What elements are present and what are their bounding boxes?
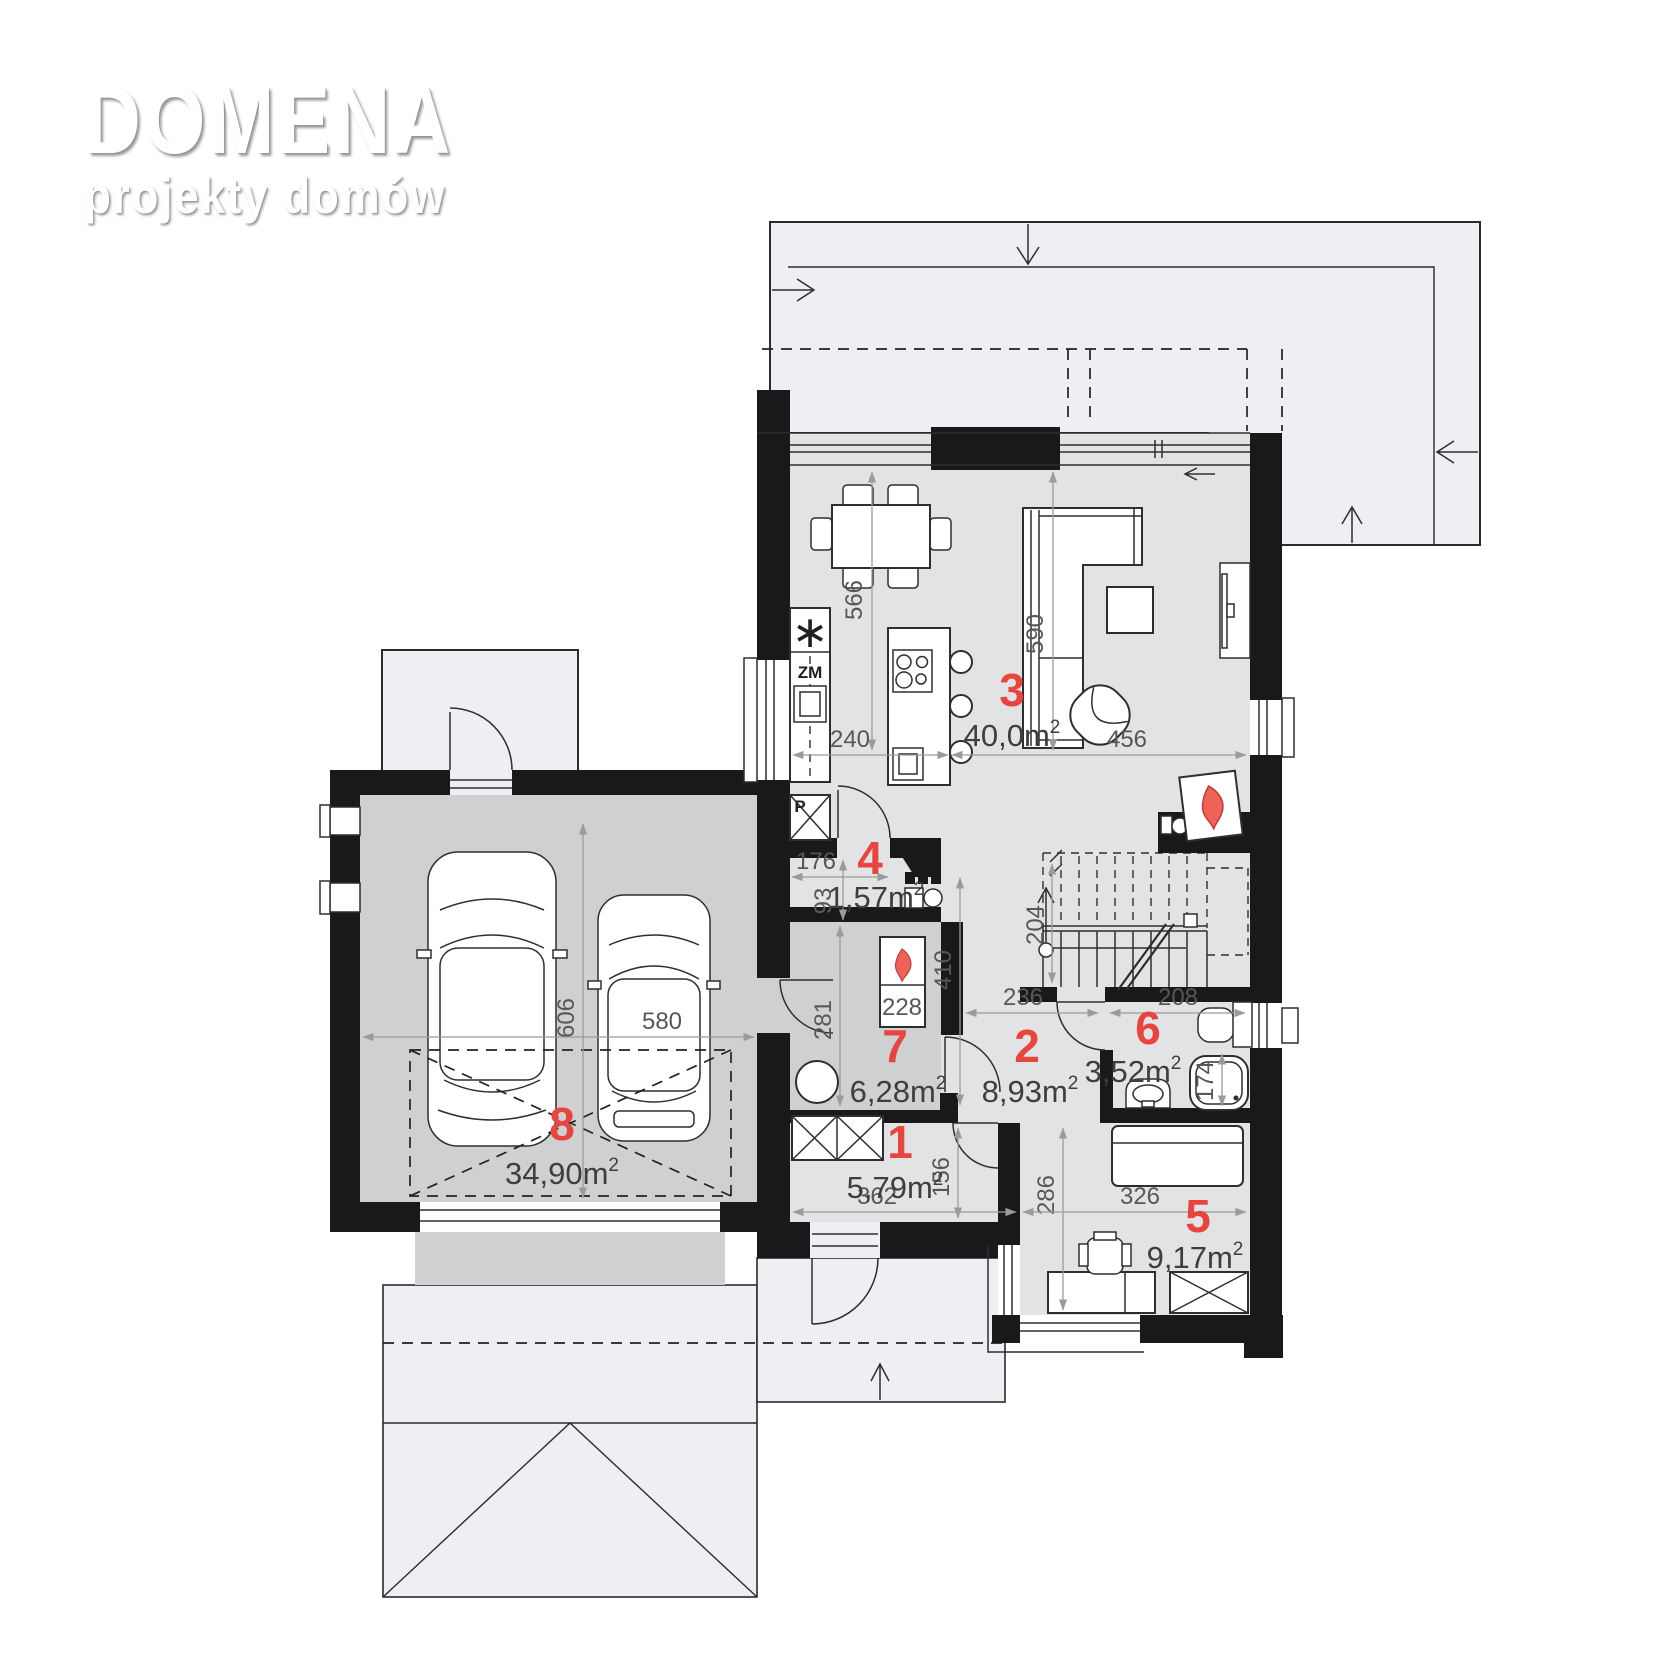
dishwasher-label: ZM: [798, 663, 823, 682]
bar-stool: [950, 651, 972, 673]
garage-apron: [415, 1232, 725, 1285]
svg-text:1: 1: [887, 1116, 913, 1168]
oven-label: P: [794, 797, 805, 816]
svg-text:4: 4: [857, 832, 883, 884]
dim-410: 410: [930, 950, 957, 990]
tv-board: [1220, 563, 1250, 658]
dim-240: 240: [830, 726, 870, 753]
floor-plan-page: DOMENA projekty domów: [0, 0, 1680, 1680]
dim-566: 566: [841, 580, 868, 620]
side-table: [1107, 587, 1153, 633]
svg-text:3,52m2: 3,52m2: [1085, 1053, 1182, 1089]
dim-606: 606: [553, 998, 580, 1038]
driveway: [383, 1285, 757, 1597]
dim-590: 590: [1022, 614, 1049, 654]
svg-text:3: 3: [999, 664, 1025, 716]
svg-text:34,90m2: 34,90m2: [505, 1155, 619, 1191]
dim-176: 176: [796, 848, 836, 875]
svg-text:1,57m2: 1,57m2: [828, 879, 925, 915]
dim-208: 208: [1158, 984, 1198, 1011]
dim-326: 326: [1120, 1183, 1160, 1210]
dim-174: 174: [1192, 1061, 1219, 1101]
bar-stool: [950, 695, 972, 717]
toilet: [1198, 1002, 1252, 1047]
oven-cabinet: P: [790, 795, 830, 840]
svg-text:5: 5: [1185, 1190, 1211, 1242]
bedroom-wardrobe: [1170, 1272, 1248, 1313]
dim-580: 580: [642, 1008, 682, 1035]
hall-wardrobe: [792, 1116, 883, 1160]
bed: [1112, 1126, 1243, 1186]
svg-text:6: 6: [1135, 1002, 1161, 1054]
kitchen-window: [744, 658, 790, 782]
boiler-label: 228: [882, 994, 922, 1021]
svg-text:6,28m2: 6,28m2: [850, 1073, 947, 1109]
living-right-window: [1250, 698, 1294, 757]
floor-plan-drawing: ∗ ZM P: [0, 0, 1680, 1680]
dim-456: 456: [1107, 726, 1147, 753]
svg-text:9,17m2: 9,17m2: [1147, 1239, 1244, 1275]
dim-281: 281: [810, 1000, 837, 1040]
fridge-icon: ∗: [792, 608, 829, 657]
kitchen-island: [888, 628, 972, 785]
dim-236: 236: [1003, 984, 1043, 1011]
svg-text:8: 8: [549, 1098, 575, 1150]
garage-gate: [420, 1202, 720, 1232]
dim-286: 286: [1033, 1175, 1060, 1215]
kitchen-cabinets: ∗ ZM P: [790, 608, 830, 840]
boiler: 228: [880, 937, 925, 1027]
svg-text:40,0m2: 40,0m2: [964, 717, 1061, 753]
bathroom-window: [1250, 1003, 1298, 1048]
desk: [1048, 1272, 1155, 1313]
svg-text:5,79m2: 5,79m2: [847, 1169, 944, 1205]
water-heater: [796, 1061, 838, 1103]
svg-text:2: 2: [1014, 1020, 1040, 1072]
dim-204: 204: [1022, 905, 1049, 945]
svg-text:7: 7: [882, 1020, 908, 1072]
svg-text:8,93m2: 8,93m2: [982, 1073, 1079, 1109]
car-large: [417, 852, 567, 1146]
